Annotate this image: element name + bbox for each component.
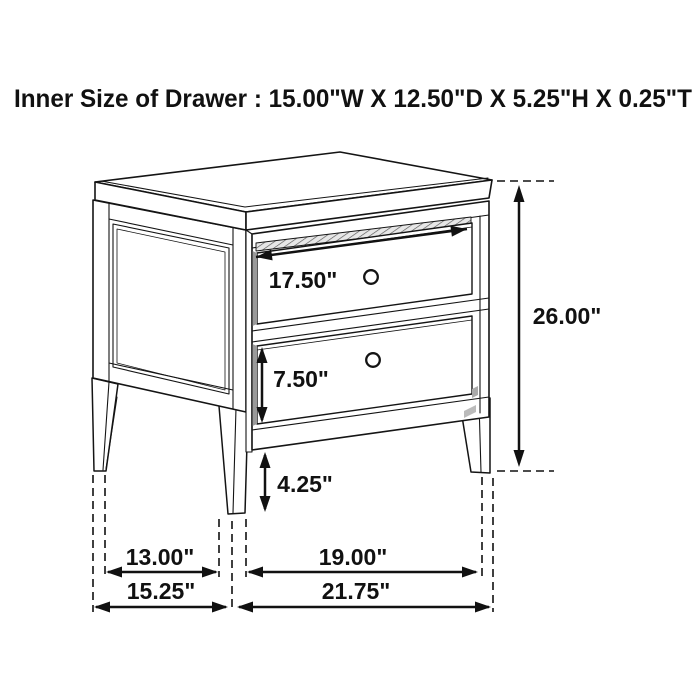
dim-label-leg-span-depth: 13.00" bbox=[126, 544, 194, 570]
dim-label-overall-depth: 15.25" bbox=[127, 578, 195, 604]
dim-label-overall-height: 26.00" bbox=[533, 303, 601, 329]
drawer-1-shadow-sliver bbox=[253, 251, 258, 326]
drawer-2-knob-icon bbox=[366, 353, 380, 367]
dim-label-lower-drawer-height: 7.50" bbox=[273, 366, 329, 392]
nightstand-dimension-diagram: Inner Size of Drawer : 15.00"W X 12.50"D… bbox=[0, 0, 700, 700]
dim-label-leg-height: 4.25" bbox=[277, 471, 333, 497]
dim-label-overall-width: 21.75" bbox=[322, 578, 390, 604]
drawer-2-shadow-sliver bbox=[253, 344, 258, 426]
drawer-1-knob-icon bbox=[364, 270, 378, 284]
front-face bbox=[252, 201, 489, 450]
dim-label-leg-span-width: 19.00" bbox=[319, 544, 387, 570]
page-title: Inner Size of Drawer : 15.00"W X 12.50"D… bbox=[14, 85, 692, 113]
corner-post bbox=[246, 230, 252, 452]
side-panel bbox=[93, 200, 246, 412]
diagram-canvas: Inner Size of Drawer : 15.00"W X 12.50"D… bbox=[0, 0, 700, 700]
dim-label-drawer-width: 17.50" bbox=[269, 267, 337, 293]
